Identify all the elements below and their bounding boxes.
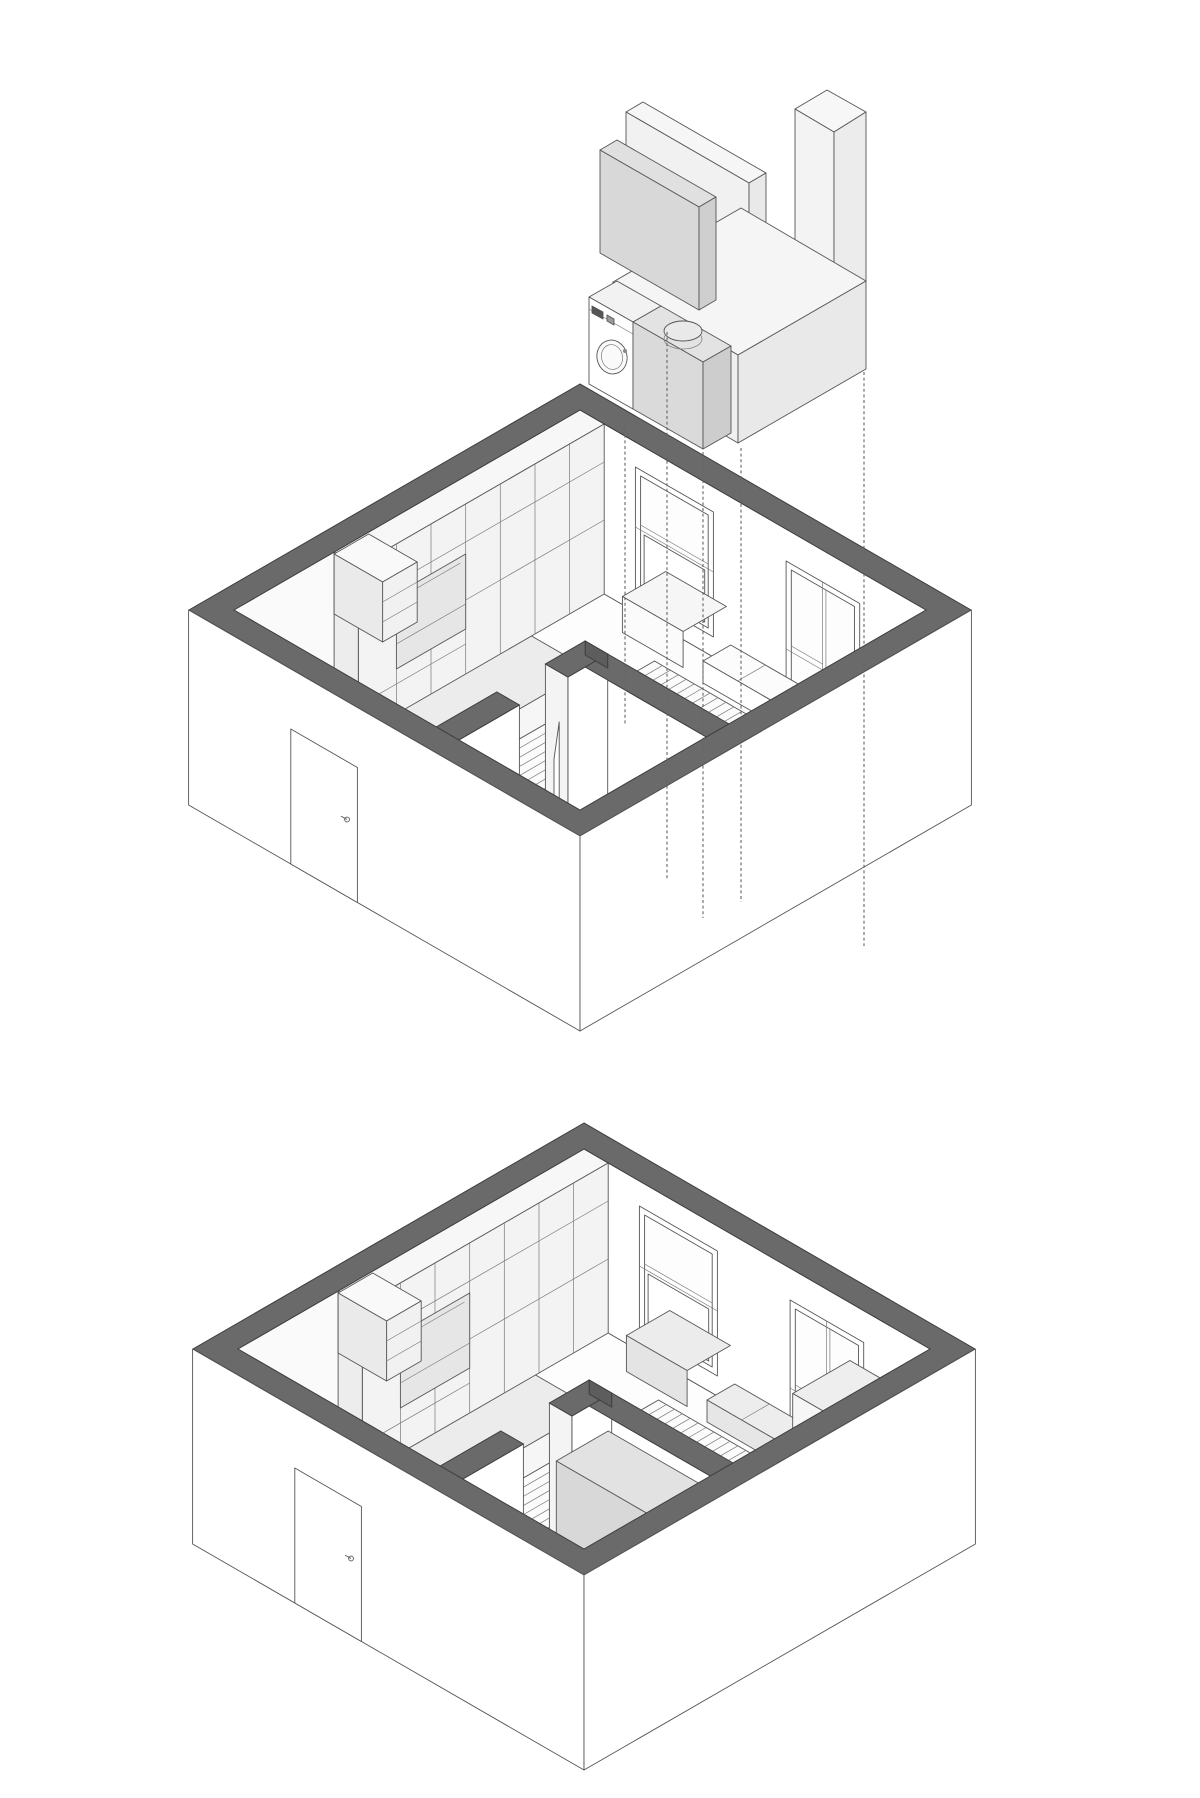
room-top [189, 384, 972, 1031]
utility-box-side [703, 346, 731, 449]
door-handle [345, 817, 350, 822]
gray-cabinet-side [699, 197, 716, 310]
exploded-axonometric-figure [189, 90, 972, 1031]
architectural-diagram-page [0, 0, 1200, 1798]
door-handle [349, 1556, 354, 1561]
assembled-axonometric-figure [193, 1123, 976, 1770]
water-heater-cylinder [664, 321, 702, 341]
room-bottom [193, 1123, 976, 1770]
axonometric-scene [0, 0, 1200, 1798]
